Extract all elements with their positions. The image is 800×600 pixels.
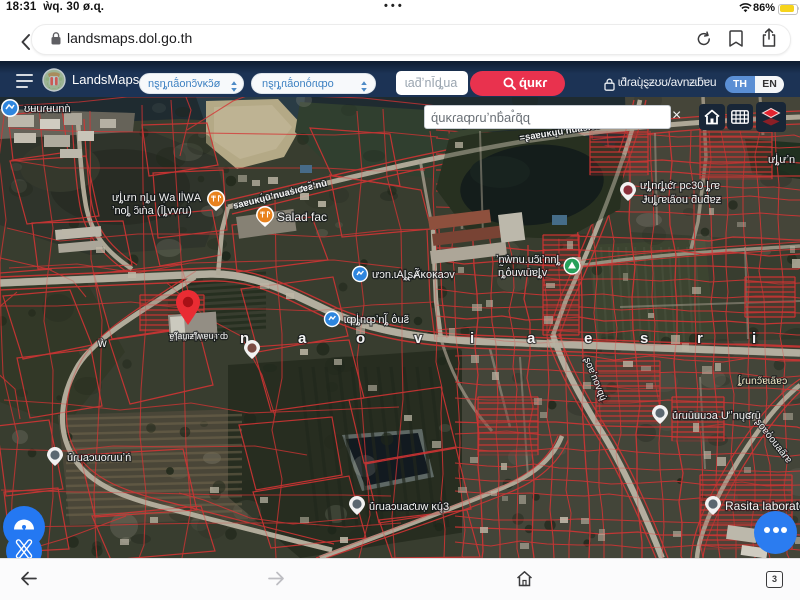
svg-text:ȵ̃ō̇uvɩūɐȴv: ȵ̃ō̇uvɩūɐȴv (498, 265, 548, 279)
svg-text:ưȴ̇ưn nȴu Ẉa ll̇ẈA: ưȴ̇ưn nȴu Ẉa ll̇ẈA (112, 191, 202, 204)
svg-text:ʼnoȴ ɔ̃ɩǹa (Īȴvvɾu): ʼnoȴ ɔ̃ɩǹa (Īȴvvɾu) (112, 205, 192, 217)
svg-text:ū́ɾuaɔuaƈuẉ ĸų́3: ū́ɾuaɔuaƈuẉ ĸų́3 (369, 501, 449, 513)
svg-text:ʼnẁnu.uɔ̃ɩʼnnȴ: ʼnẁnu.uɔ̃ɩʼnnȴ (496, 254, 561, 266)
svg-text:e: e (584, 330, 592, 347)
svg-text:ȹ.ɩʼnáẁȴƶɩñɐȴa̋: ȹ.ɩʼnáẁȴƶɩñɐȴa̋ (169, 331, 228, 342)
svg-text:ȴ́ɾunɔ̋ɐɩa̋ɐɔ: ȴ́ɾunɔ̋ɐɩa̋ɐɔ (737, 374, 787, 387)
svg-text:ʊʉuɾʉunǹ: ʊʉuɾʉunǹ (24, 103, 71, 115)
svg-text:a: a (298, 330, 307, 347)
svg-text:ưɔn.ɩAȴʂȺ̃ĸoĸaɔv: ưɔn.ɩAȴʂȺ̃ĸoĸaɔv (372, 268, 455, 281)
svg-text:Salad fac: Salad fac (277, 210, 327, 224)
svg-text:ū́ɾuūuuɔa Ưʼnųʛɾū: ū́ɾuūuuɔa Ưʼnųʛɾū (672, 410, 761, 422)
svg-text:v: v (414, 330, 423, 347)
svg-text:Rasita laborator: Rasita laborator (725, 499, 800, 513)
svg-text:ɩȹȴ̇nȹʼnȴ̃ ō̇uƨ̃: ɩȹȴ̇nȹʼnȴ̃ ō̇uƨ̃ (344, 313, 410, 326)
svg-text:Ɉuȴɾɐɩa̋ou ƌuƌɐƶ: Ɉuȴɾɐɩa̋ou ƌuƌɐƶ (642, 194, 722, 206)
svg-text:ū́ɾuaɔuoɾuuʼń: ū́ɾuaɔuoɾuuʼń (67, 452, 131, 464)
svg-text:a: a (527, 330, 536, 347)
svg-text:i: i (752, 330, 756, 347)
svg-text:r: r (697, 330, 703, 347)
svg-text:s: s (640, 330, 648, 347)
svg-text:ưȴ̇ưʼn: ưȴ̇ưʼn (768, 153, 795, 166)
svg-text:i: i (470, 330, 474, 347)
svg-text:ẁ: ẁ (97, 336, 107, 350)
svg-text:ưȴnɾȴɩƈ́ɾ pc30 ȴɾɐ: ưȴnɾȴɩƈ́ɾ pc30 ȴɾɐ (640, 180, 720, 192)
svg-text:o: o (356, 330, 365, 347)
